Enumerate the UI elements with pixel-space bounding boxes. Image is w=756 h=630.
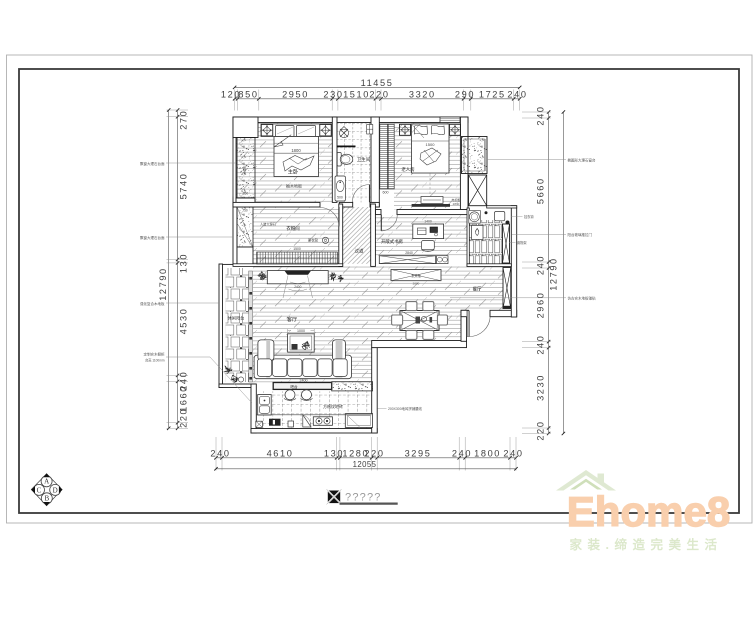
svg-text:240: 240 [536,105,546,125]
svg-text:卫生间: 卫生间 [357,156,370,163]
svg-text:240: 240 [536,255,546,275]
svg-text:家装.缔造完美生活: 家装.缔造完美生活 [570,537,723,552]
svg-text:4610: 4610 [267,448,294,458]
svg-text:1500: 1500 [293,247,301,251]
svg-text:大理石: 大理石 [242,165,247,174]
svg-text:挂衣钩: 挂衣钩 [524,214,534,219]
svg-text:开敞式书房: 开敞式书房 [381,238,404,245]
svg-text:220: 220 [364,448,384,458]
svg-text:人造大理石: 人造大理石 [260,222,276,227]
svg-text:2400: 2400 [294,285,301,289]
svg-text:2840: 2840 [453,202,460,206]
svg-text:1510: 1510 [343,90,370,100]
svg-text:5740: 5740 [179,173,189,200]
svg-text:850: 850 [243,192,249,196]
svg-text:阳台玻璃推拉门: 阳台玻璃推拉门 [568,232,593,237]
svg-text:220: 220 [536,420,546,440]
svg-text:12055: 12055 [353,460,377,469]
svg-text:玄关柜: 玄关柜 [411,273,421,278]
svg-text:290: 290 [455,90,475,100]
svg-text:1000: 1000 [297,329,305,333]
svg-text:餐厅: 餐厅 [473,286,482,293]
svg-text:主卧: 主卧 [288,168,298,176]
svg-text:240: 240 [536,335,546,355]
svg-text:4530: 4530 [179,308,189,335]
svg-text:休闲阳台: 休闲阳台 [228,315,245,322]
svg-text:12790: 12790 [549,257,559,291]
svg-text:270: 270 [179,110,189,130]
svg-text:老人房: 老人房 [401,166,415,173]
svg-text:过道: 过道 [355,248,364,255]
svg-text:2840: 2840 [405,251,413,255]
svg-text:130: 130 [179,253,189,273]
svg-text:更衣凳: 更衣凳 [308,238,319,243]
svg-text:240: 240 [507,90,527,100]
svg-text:2960: 2960 [536,292,546,319]
svg-text:1800: 1800 [474,448,501,458]
svg-text:B: B [44,495,49,503]
svg-text:12790: 12790 [158,267,168,301]
svg-text:3230: 3230 [536,374,546,401]
svg-text:240: 240 [503,448,523,458]
svg-text:A: A [44,478,49,486]
svg-text:椭圆形大理石窗台: 椭圆形大理石窗台 [568,157,596,162]
svg-text:240: 240 [452,448,472,458]
svg-text:750: 750 [242,209,248,213]
svg-text:方格纹地砖: 方格纹地砖 [323,403,343,409]
svg-text:3295: 3295 [405,448,432,458]
svg-text:客厅: 客厅 [287,315,297,323]
svg-text:飘窗大理石台面: 飘窗大理石台面 [140,161,165,166]
svg-text:220: 220 [369,90,389,100]
svg-text:1800: 1800 [291,148,301,153]
svg-text:2000: 2000 [413,282,420,286]
svg-text:11455: 11455 [361,78,394,88]
svg-text:5660: 5660 [536,177,546,204]
svg-text:220: 220 [179,408,189,428]
svg-text:C: C [37,486,42,494]
svg-text:?????: ????? [345,492,382,504]
svg-text:柚木地板: 柚木地板 [286,183,302,189]
svg-text:定制实木橱柜: 定制实木橱柜 [144,352,165,357]
svg-text:飘窗大理石台面: 飘窗大理石台面 [140,235,165,240]
svg-text:D: D [53,486,58,494]
svg-text:1400: 1400 [424,220,432,224]
svg-text:2950: 2950 [282,90,309,100]
svg-text:500: 500 [337,196,343,200]
svg-text:仿古实木地板铺贴: 仿古实木地板铺贴 [568,296,596,301]
svg-text:1500: 1500 [426,142,436,147]
svg-text:600: 600 [383,191,389,195]
svg-text:3320: 3320 [409,90,436,100]
svg-text:吧台: 吧台 [290,384,298,389]
svg-text:台高 1100mm: 台高 1100mm [145,358,165,363]
svg-text:130: 130 [324,448,344,458]
svg-text:850: 850 [238,90,258,100]
svg-text:置物架: 置物架 [517,240,527,245]
svg-text:230: 230 [323,90,343,100]
svg-text:衣帽间: 衣帽间 [286,225,299,232]
svg-text:1725: 1725 [479,90,506,100]
svg-text:Ehome8: Ehome8 [567,488,730,535]
svg-text:240: 240 [210,448,230,458]
svg-text:200X300地砖拼铺腰线: 200X300地砖拼铺腰线 [388,406,423,411]
svg-text:强化复合木地板: 强化复合木地板 [140,301,165,306]
